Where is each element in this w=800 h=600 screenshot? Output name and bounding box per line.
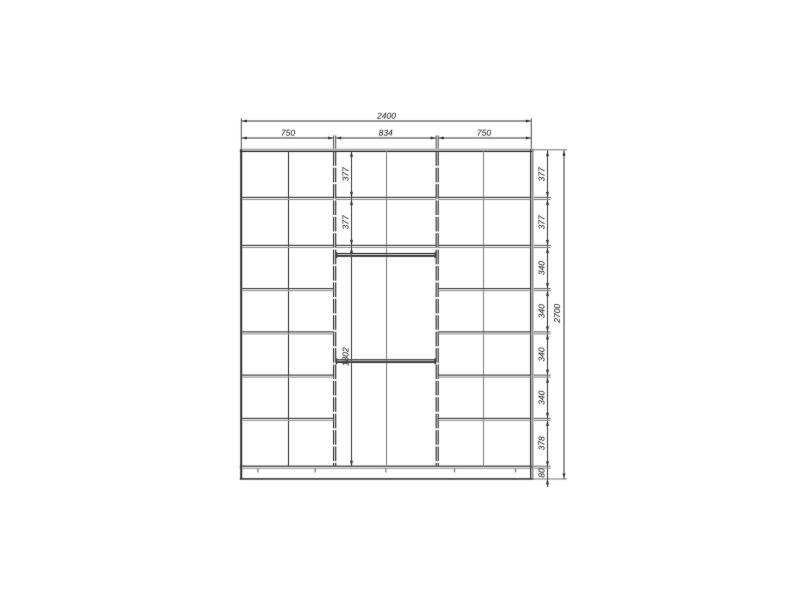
svg-text:377: 377 [536,215,546,229]
svg-text:80: 80 [536,468,546,478]
svg-text:750: 750 [477,128,491,138]
svg-text:2700: 2700 [552,304,562,324]
svg-text:2400: 2400 [376,111,396,121]
svg-text:377: 377 [536,167,546,181]
svg-text:750: 750 [281,128,295,138]
svg-text:834: 834 [379,128,393,138]
svg-text:1802: 1802 [341,347,351,366]
svg-text:377: 377 [341,167,351,181]
svg-text:377: 377 [341,215,351,229]
svg-text:340: 340 [536,304,546,318]
svg-text:340: 340 [536,347,546,361]
svg-text:340: 340 [536,390,546,404]
svg-text:378: 378 [536,436,546,450]
svg-text:340: 340 [536,261,546,275]
